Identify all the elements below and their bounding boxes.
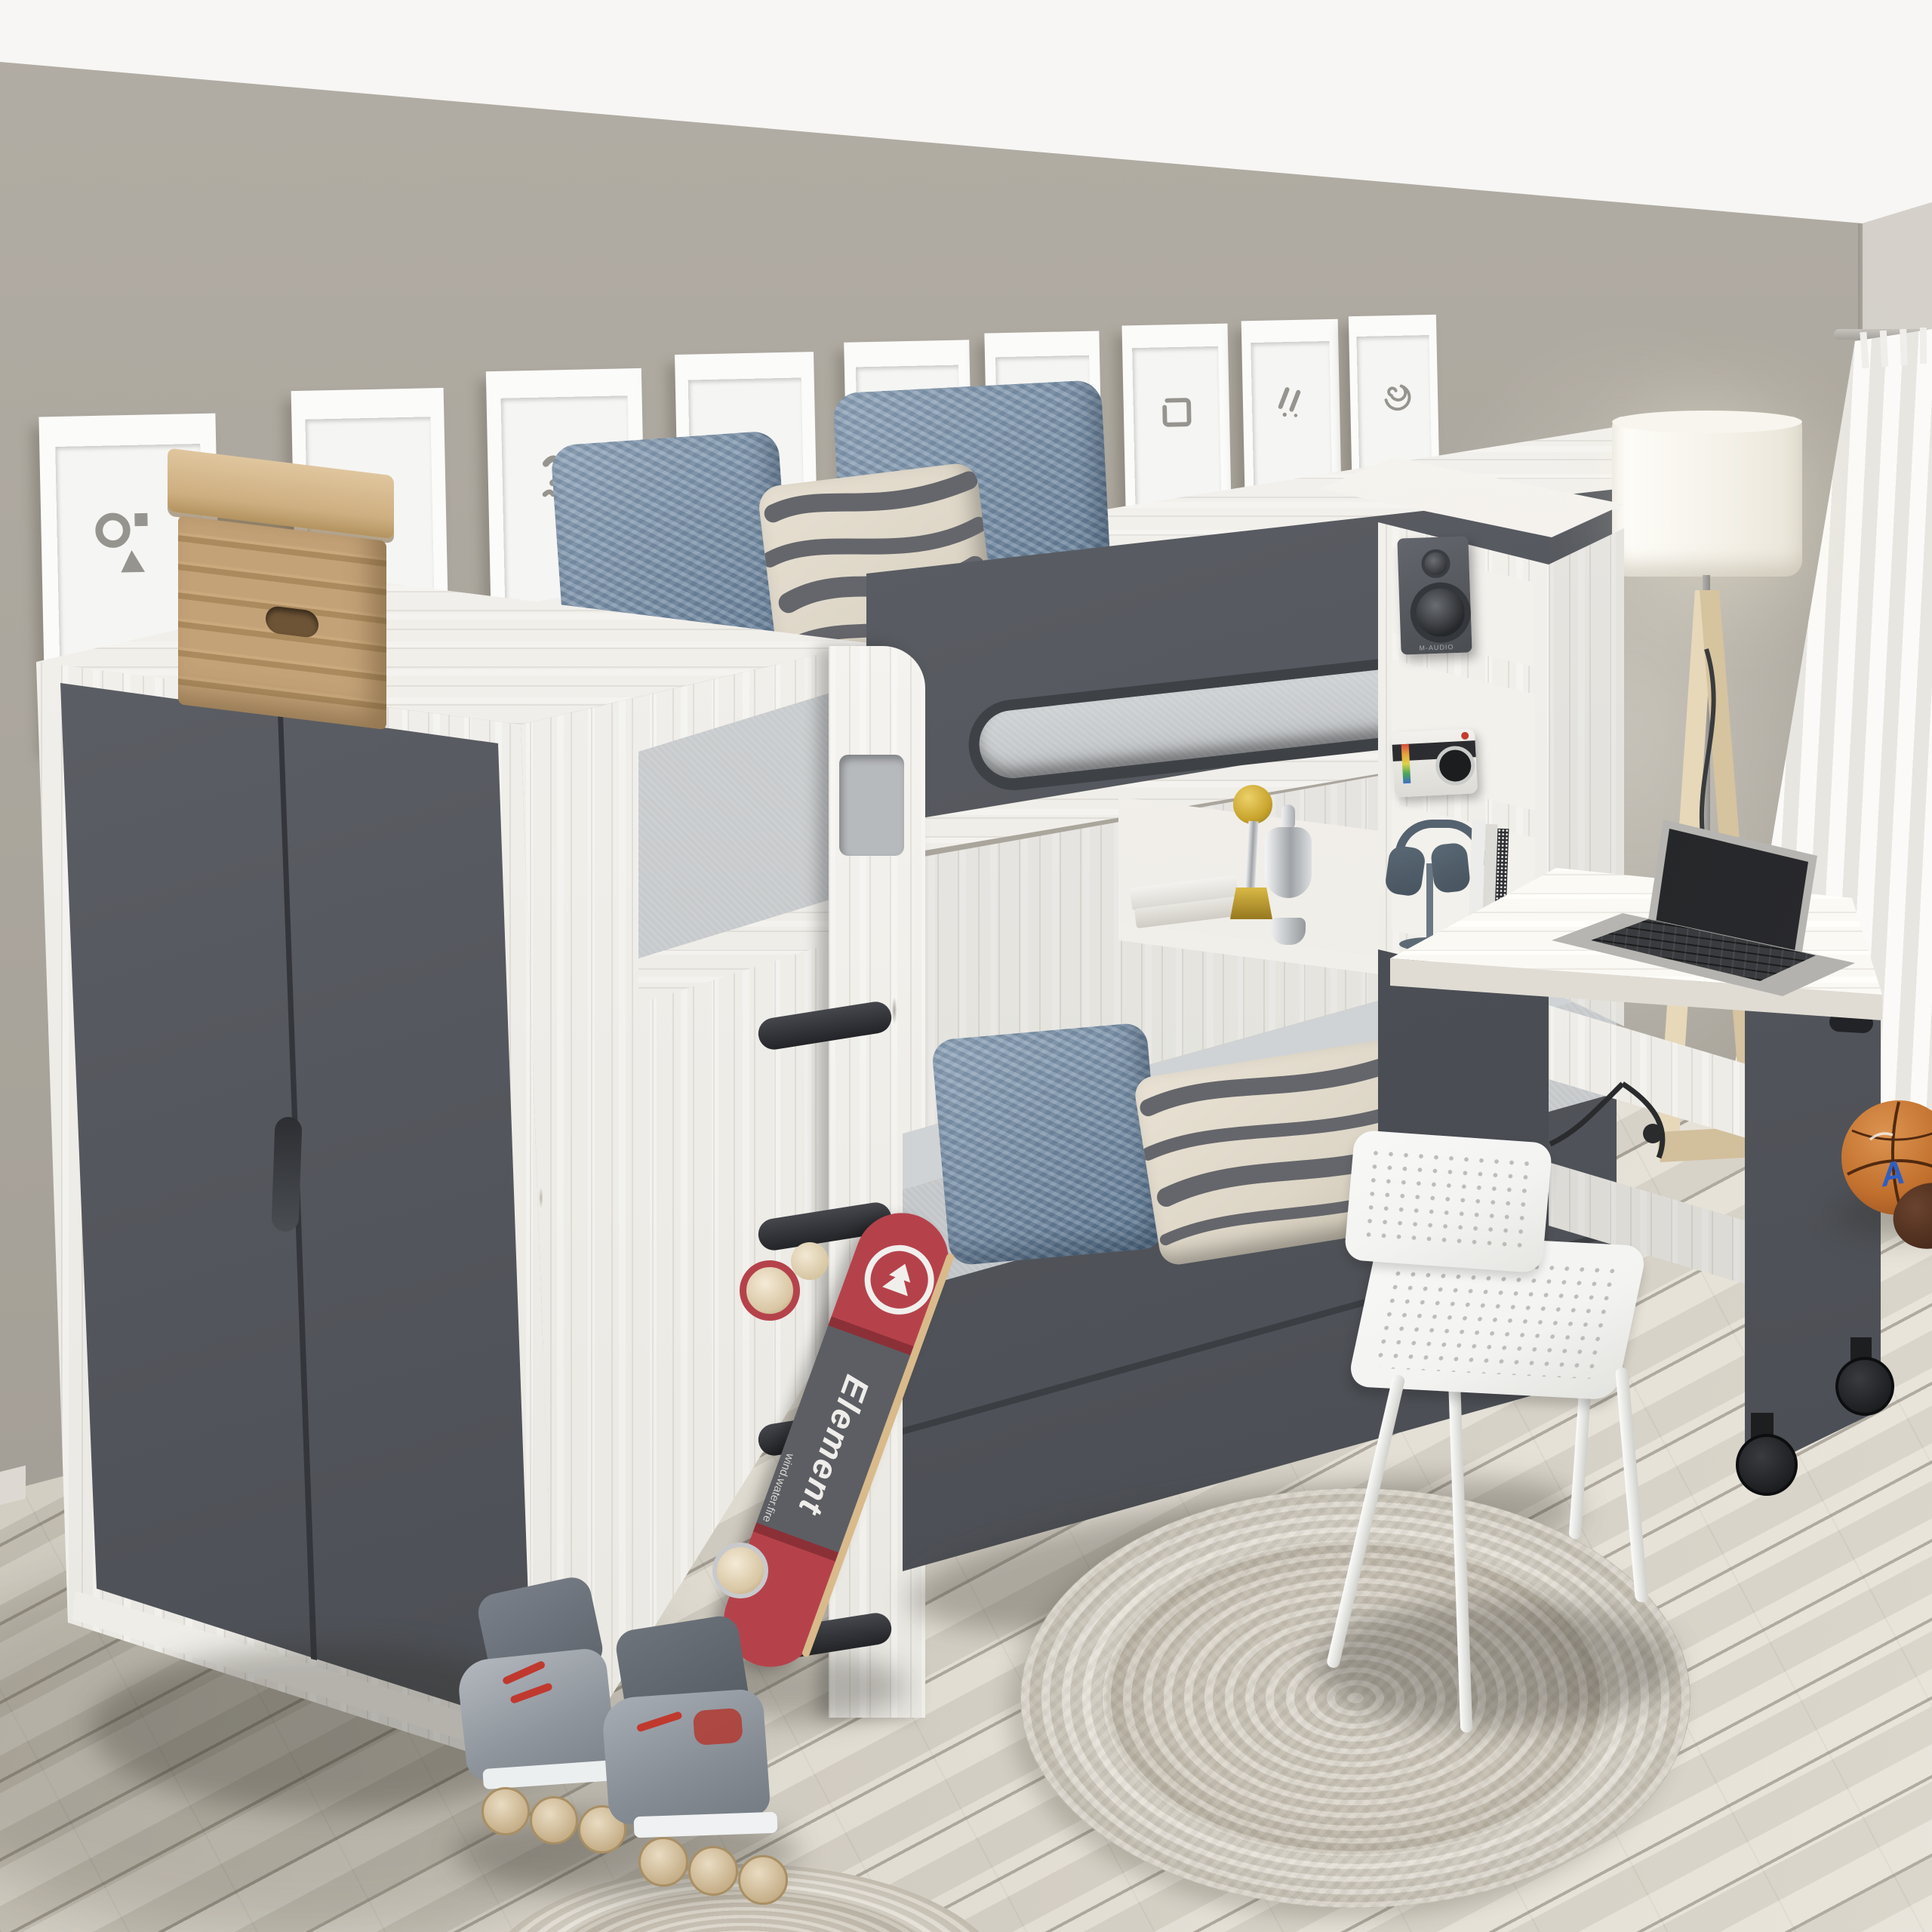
skateboard-wheel-near [712, 1543, 768, 1598]
ladder-panel-cutout [839, 755, 904, 856]
chair-backrest [1343, 1130, 1552, 1273]
camera-shutter-button [1461, 732, 1469, 740]
speaker-woofer [1409, 581, 1472, 644]
speaker-brand-label: M-AUDIO [1401, 642, 1472, 652]
skate-lace [509, 1682, 553, 1704]
desk-caster-wheel [1835, 1357, 1894, 1416]
silver-cup-body [1265, 827, 1312, 898]
chair-seat-perforation [1371, 1253, 1624, 1380]
skateboard-wheel-far [791, 1242, 829, 1280]
baseboard [0, 1466, 26, 1505]
lamp-shade-top [1612, 411, 1802, 433]
curtain-tab [1900, 329, 1908, 365]
skate-heel-accent [693, 1708, 743, 1746]
chair-backrest-perforation [1360, 1146, 1537, 1257]
skate-wheel [688, 1846, 738, 1896]
silver-cup-foot [1271, 918, 1306, 945]
skate-lace [502, 1660, 546, 1686]
lower-pillow-blue [931, 1022, 1165, 1266]
skate-wheel [481, 1787, 530, 1835]
speaker: M-AUDIO [1397, 536, 1472, 654]
instant-camera [1392, 728, 1478, 798]
wardrobe-door-handle-groove [271, 1116, 302, 1232]
headphone-cup [1430, 842, 1471, 894]
silver-cup-lid [1281, 804, 1295, 830]
skate-right-boot [601, 1688, 771, 1826]
trophy-ball [1233, 785, 1272, 824]
skate-lace [636, 1711, 683, 1733]
speaker-tweeter [1421, 549, 1451, 578]
room-scene: M-AUDIO [0, 0, 1932, 1932]
skate-wheel [638, 1837, 688, 1887]
glyph-brush-shapes [83, 494, 177, 587]
curtain-tab [1920, 328, 1927, 364]
glyph-spiral-coil [1371, 369, 1417, 416]
headphone-stand-pole [1426, 863, 1433, 945]
skate-wheel [738, 1855, 788, 1905]
skateboard-wheel-near [740, 1260, 800, 1321]
skate-wheel [530, 1796, 578, 1844]
headphone-cup [1384, 844, 1426, 897]
trophy-base [1230, 888, 1272, 919]
glyph-slash-marks [1266, 377, 1317, 429]
chair-floor-shadow [1313, 1600, 1675, 1728]
glyph-square-outline [1149, 384, 1204, 440]
lamp-shade [1612, 417, 1802, 577]
element-tree-icon [870, 1251, 928, 1309]
desk-caster-wheel [1736, 1434, 1798, 1496]
